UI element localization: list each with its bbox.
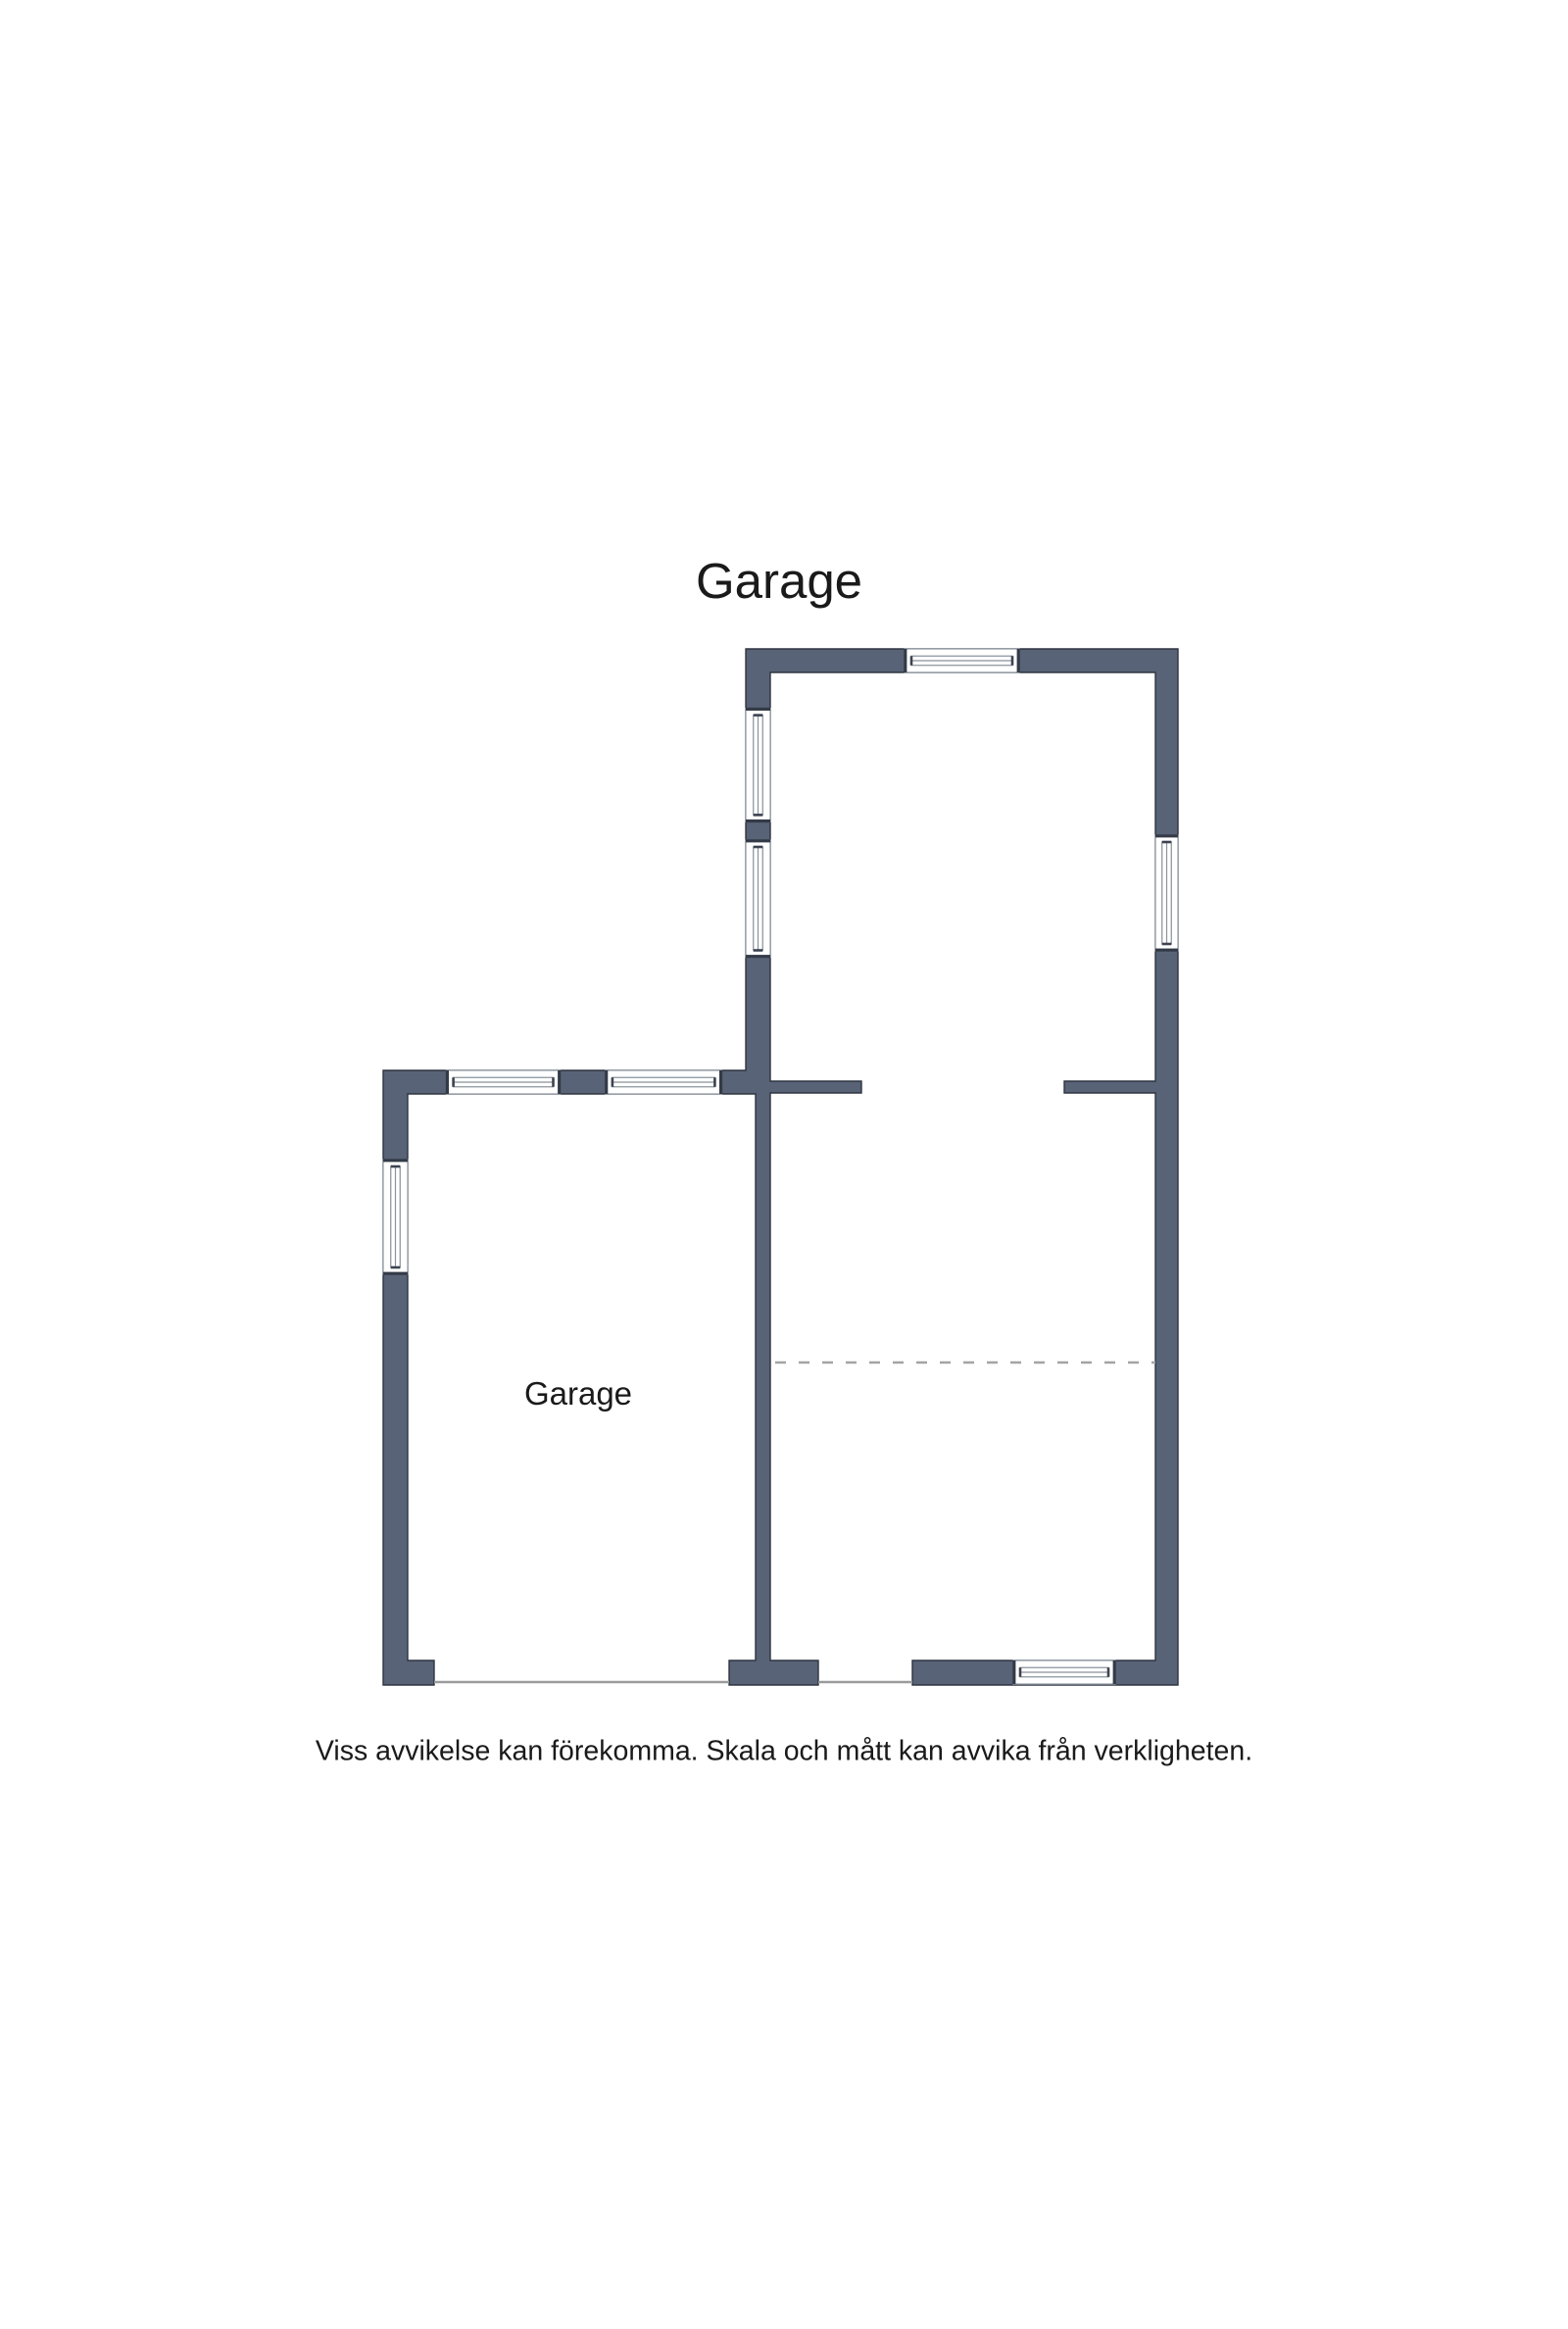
svg-text:Viss avvikelse kan förekomma.: Viss avvikelse kan förekomma. Skala och …: [316, 1736, 1252, 1767]
svg-text:Garage: Garage: [696, 553, 862, 609]
svg-text:Garage: Garage: [524, 1375, 632, 1412]
